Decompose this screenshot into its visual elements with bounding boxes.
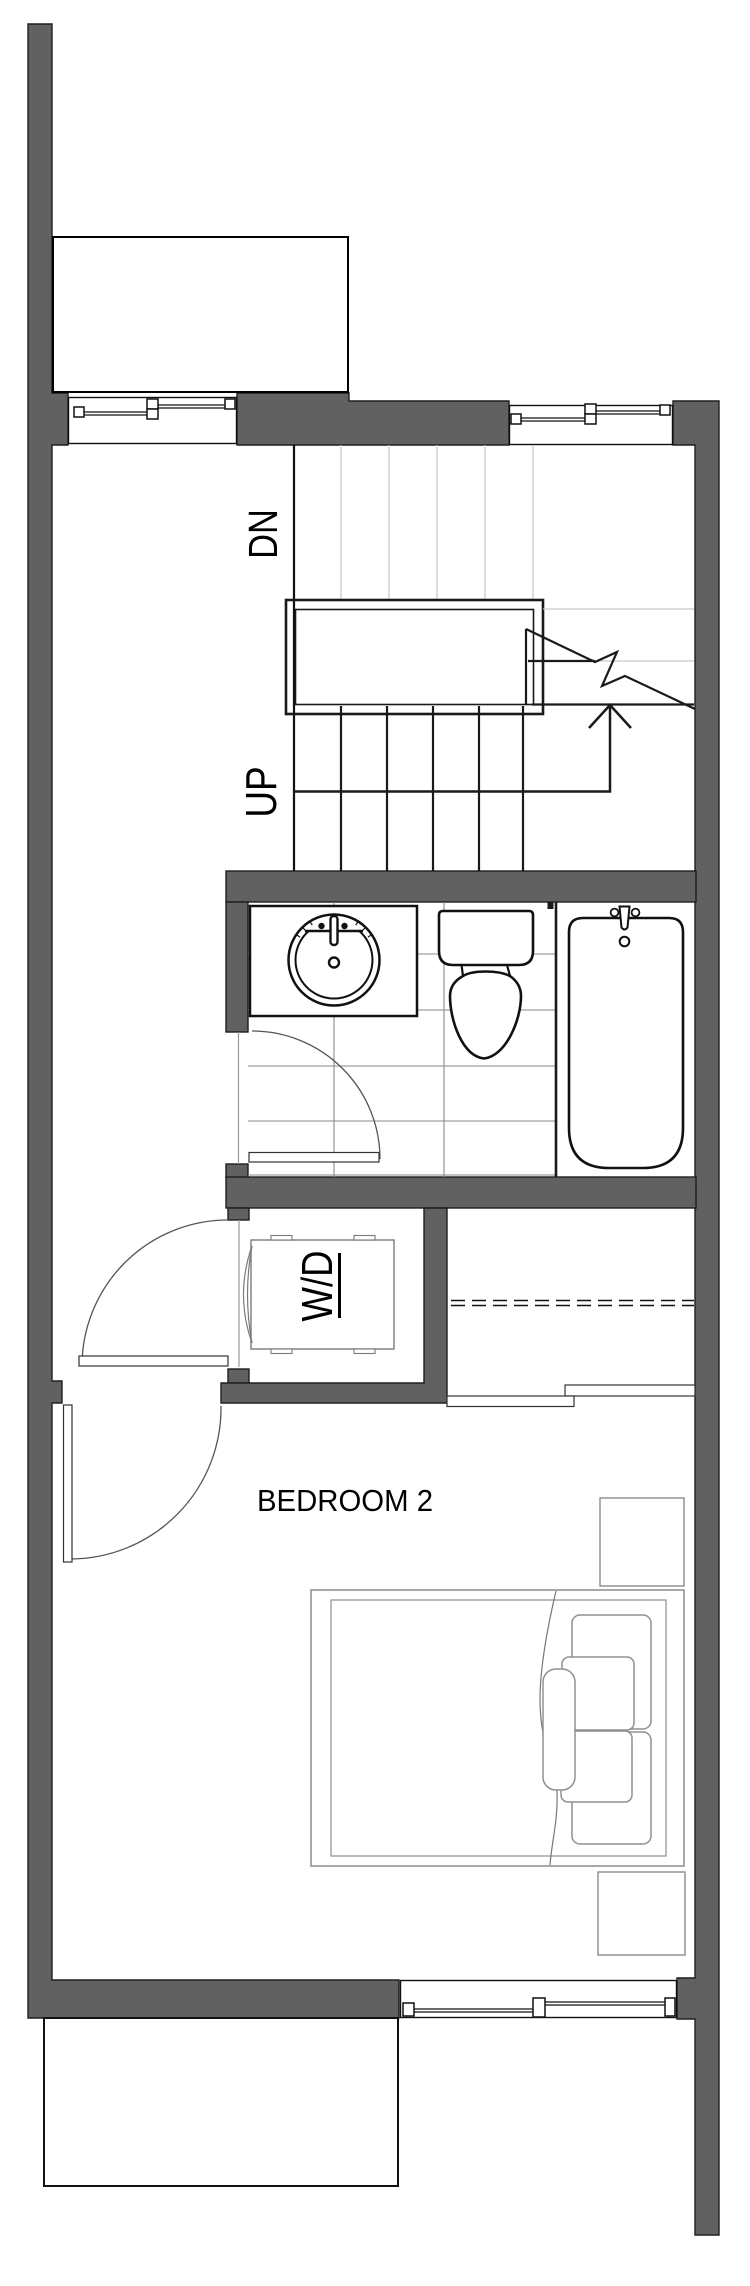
svg-text:BEDROOM 2: BEDROOM 2	[257, 1483, 433, 1518]
svg-text:UP: UP	[236, 766, 286, 817]
svg-text:W/D: W/D	[292, 1251, 342, 1322]
svg-text:DN: DN	[241, 509, 286, 559]
